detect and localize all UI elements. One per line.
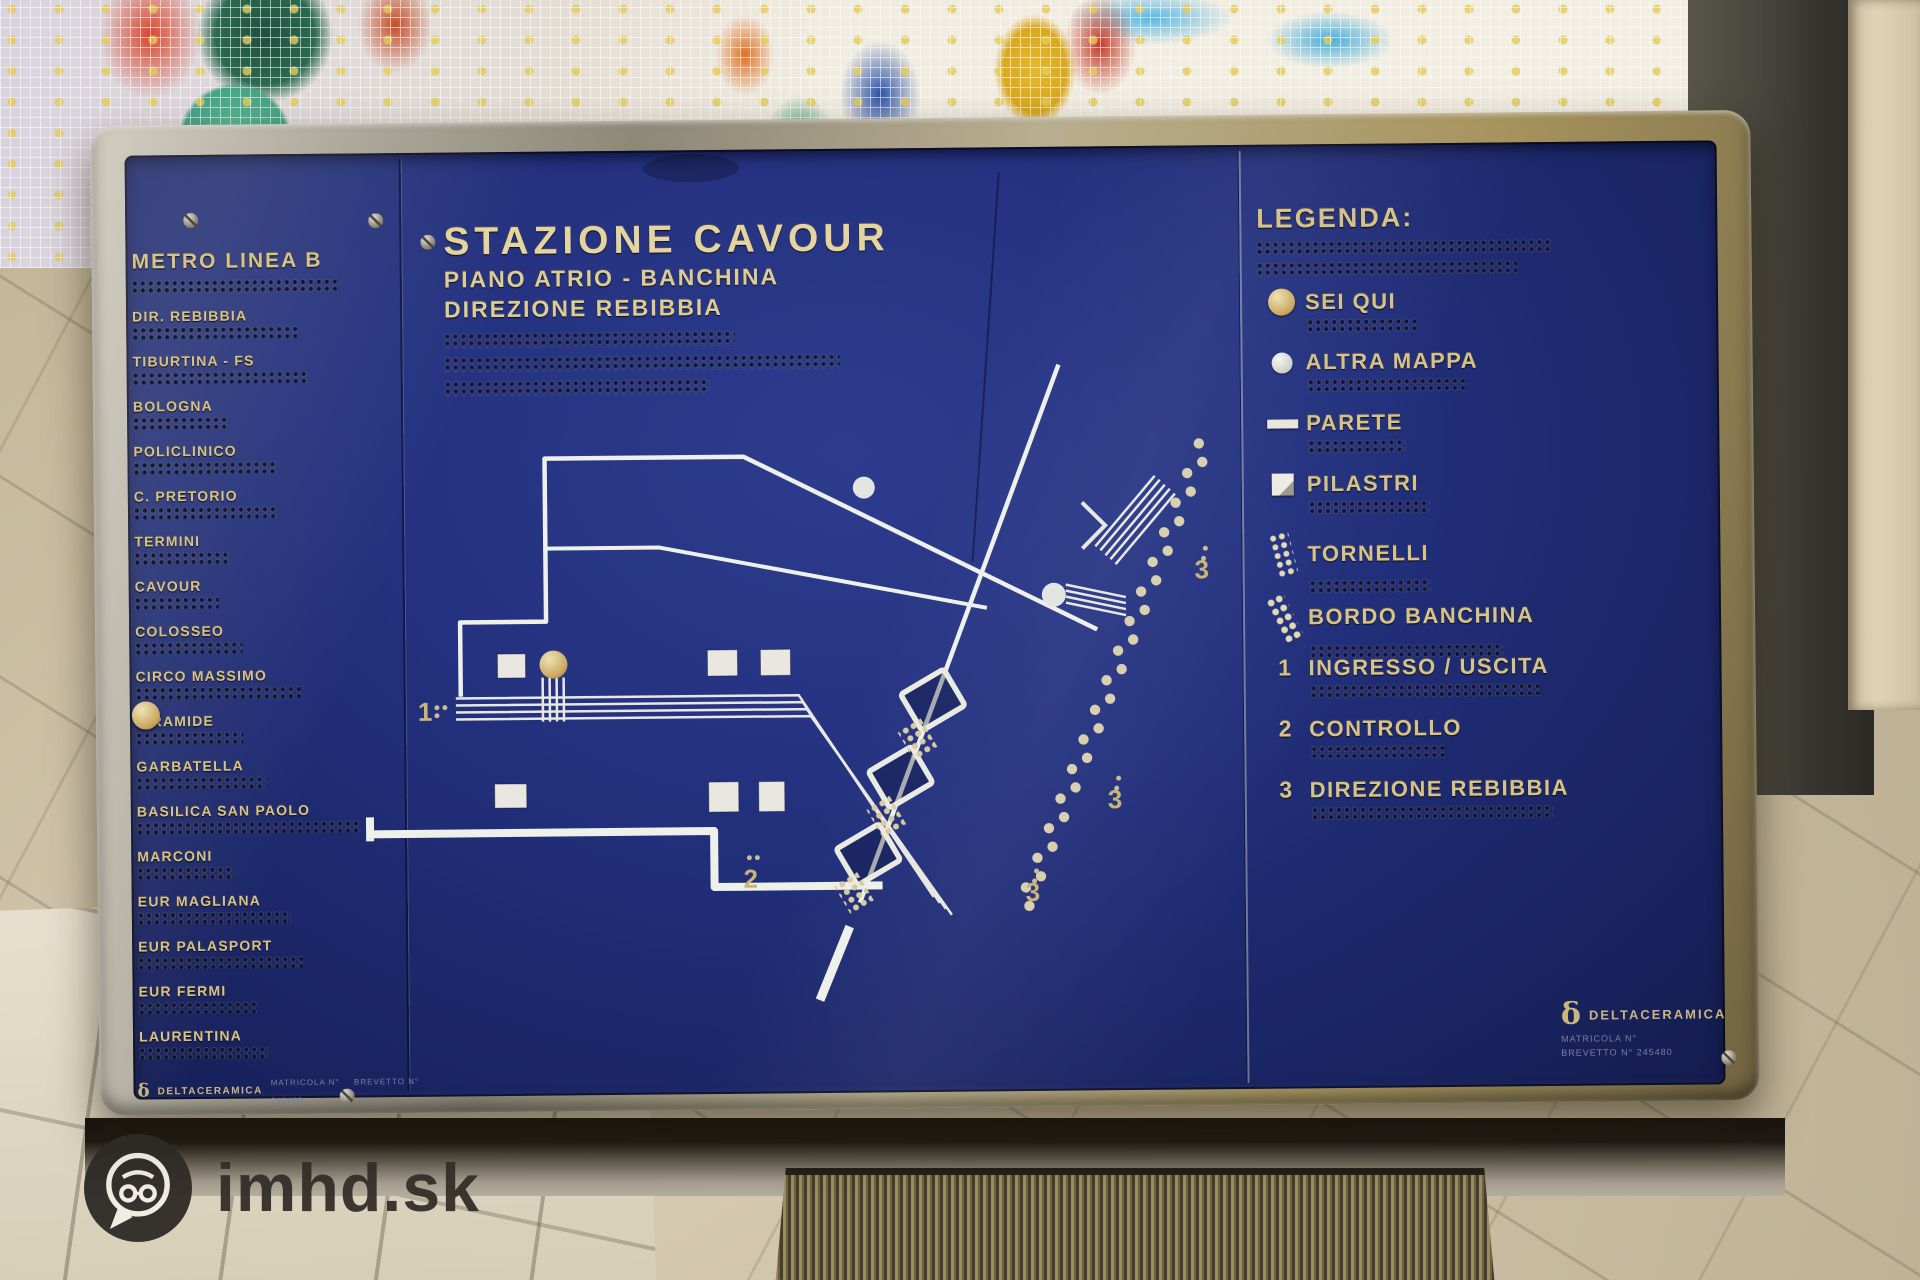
manufacturer-logo-icon: δ	[137, 1082, 149, 1100]
station-item: C. PRETORIO	[134, 486, 406, 534]
station-name: DIR. REBIBBIA	[132, 306, 404, 325]
photo-scene: 1 2 3 3 3 METRO LINEA B DIR. REBIBBIATIB…	[0, 0, 1920, 1280]
station-item: COLOSSEO	[135, 621, 407, 669]
station-name: EUR MAGLIANA	[138, 891, 410, 910]
legend-braille	[1308, 439, 1405, 453]
legend-label: BORDO BANCHINA	[1308, 602, 1535, 630]
white-dot-icon	[1271, 352, 1292, 373]
title-line3: DIREZIONE REBIBBIA	[444, 290, 891, 324]
platform-edge-dots-icon	[1265, 592, 1303, 643]
station-braille	[138, 911, 291, 924]
legend-item: TORNELLI	[1259, 528, 1740, 594]
station-item: CAVOUR	[135, 576, 407, 624]
legend-braille	[1308, 378, 1465, 393]
platform-edge-dots-icon	[1260, 593, 1308, 641]
braille-row	[132, 279, 337, 294]
legend-marker-number: 1	[1278, 654, 1291, 681]
legend-number-marker: 3	[1262, 776, 1310, 803]
station-list: DIR. REBIBBIATIBURTINA - FSBOLOGNAPOLICL…	[132, 306, 411, 1074]
white-dot-icon	[1258, 352, 1306, 373]
station-item: TIBURTINA - FS	[132, 351, 404, 399]
legend-marker-number: 2	[1279, 715, 1292, 742]
legend-item: PARETE	[1258, 406, 1739, 472]
legend-marker-number: 3	[1279, 776, 1292, 803]
station-name: GARBATELLA	[136, 756, 408, 775]
station-name: CIRCO MASSIMO	[135, 666, 407, 685]
legend-braille	[1311, 683, 1540, 698]
station-braille	[132, 326, 297, 340]
imhd-logo-icon	[84, 1134, 192, 1242]
ventilation-grate	[775, 1168, 1495, 1280]
manufacturer-mark-small: δ DELTACERAMICA MATRICOLA N° BREVETTO N°…	[137, 1071, 437, 1110]
legend-braille	[1310, 579, 1431, 593]
station-braille	[135, 597, 219, 610]
legend-label: DIREZIONE REBIBBIA	[1310, 774, 1569, 802]
station-item: TERMINI	[134, 531, 406, 579]
station-braille	[133, 371, 309, 385]
legend-label: CONTROLLO	[1309, 714, 1462, 741]
station-item: BASILICA SAN PAOLO	[137, 801, 409, 849]
gold-dot-icon	[1267, 288, 1294, 315]
stone-pillar	[1848, 0, 1920, 710]
station-braille	[137, 867, 233, 880]
legend-item: 1INGRESSO / USCITA	[1260, 650, 1741, 716]
station-braille	[136, 732, 243, 745]
title-line2: PIANO ATRIO - BANCHINA	[444, 260, 891, 294]
legend-braille	[1312, 805, 1553, 820]
turnstile-dots-icon	[1268, 531, 1298, 579]
pillar-square-icon	[1272, 473, 1294, 495]
station-braille	[139, 1001, 258, 1014]
station-item: PIRAMIDE	[136, 711, 408, 759]
legend-label: SEI QUI	[1305, 288, 1396, 315]
legend-item: BORDO BANCHINA	[1260, 589, 1741, 655]
turnstile-dots-icon	[1259, 532, 1307, 576]
pillar-square-icon	[1259, 473, 1307, 495]
screw-icon	[340, 1088, 355, 1103]
manufacturer-name: DELTACERAMICA	[1589, 1006, 1727, 1022]
legend-column: LEGENDA: SEI QUIALTRA MAPPAPARETEPILASTR…	[1256, 198, 1742, 838]
legend-number-marker: 1	[1260, 654, 1308, 681]
legend-item: 2CONTROLLO	[1261, 711, 1742, 777]
station-list-column: METRO LINEA B DIR. REBIBBIATIBURTINA - F…	[131, 247, 411, 1074]
legend-braille	[1307, 318, 1416, 332]
station-braille	[134, 552, 230, 565]
station-braille	[138, 956, 303, 970]
braille-row	[445, 379, 710, 397]
station-item: BOLOGNA	[133, 396, 405, 444]
manufacturer-patent: BREVETTO N° 245480	[1561, 1046, 1781, 1058]
legend-number-marker: 2	[1261, 715, 1309, 742]
station-name: TIBURTINA - FS	[132, 351, 404, 370]
line-header: METRO LINEA B	[131, 247, 403, 276]
screw-icon	[183, 213, 198, 228]
station-name: POLICLINICO	[133, 441, 405, 460]
legend-label: PARETE	[1306, 409, 1403, 436]
station-name: LAURENTINA	[139, 1026, 411, 1045]
legend-braille	[1311, 745, 1444, 759]
braille-row	[1256, 239, 1551, 256]
legend-label: PILASTRI	[1307, 470, 1419, 497]
station-item: LAURENTINA	[139, 1026, 411, 1074]
station-item: DIR. REBIBBIA	[132, 306, 404, 354]
station-name: TERMINI	[134, 531, 406, 550]
wall-bar-icon	[1267, 419, 1298, 428]
you-are-here-dot	[132, 701, 160, 729]
station-braille	[136, 686, 301, 700]
imhd-watermark: imhd.sk	[84, 1134, 480, 1242]
legend-header: LEGENDA:	[1256, 198, 1736, 235]
station-braille	[134, 461, 276, 474]
legend-label: TORNELLI	[1307, 540, 1429, 567]
station-name: COLOSSEO	[135, 621, 407, 640]
station-name: EUR FERMI	[139, 981, 411, 1000]
legend-braille	[1309, 500, 1430, 514]
legend-items: SEI QUIALTRA MAPPAPARETEPILASTRITORNELLI…	[1257, 284, 1742, 838]
station-braille	[133, 417, 229, 430]
station-name: CAVOUR	[135, 576, 407, 595]
braille-row	[444, 331, 734, 349]
station-name: PIRAMIDE	[136, 711, 408, 730]
station-braille	[134, 506, 276, 519]
tactile-map-panel: 1 2 3 3 3 METRO LINEA B DIR. REBIBBIATIB…	[90, 110, 1759, 1116]
station-item: EUR FERMI	[139, 981, 411, 1029]
station-title: STAZIONE CAVOUR	[443, 216, 890, 264]
manufacturer-mark: δ DELTACERAMICA MATRICOLA N° BREVETTO N°…	[1561, 998, 1782, 1058]
station-braille	[137, 820, 359, 834]
station-name: BASILICA SAN PAOLO	[137, 801, 409, 820]
legend-braille	[1310, 643, 1503, 658]
screw-icon	[420, 235, 435, 250]
manufacturer-serial: MATRICOLA N°	[1561, 1032, 1781, 1044]
station-name: BOLOGNA	[133, 396, 405, 415]
wall-bar-icon	[1258, 419, 1306, 428]
braille-row	[1257, 260, 1517, 276]
gold-dot-icon	[1257, 288, 1305, 315]
station-name: EUR PALASPORT	[138, 936, 410, 955]
braille-row	[445, 354, 840, 373]
station-name: C. PRETORIO	[134, 486, 406, 505]
manufacturer-logo-icon: δ	[1561, 1000, 1581, 1030]
manufacturer-name: DELTACERAMICA	[158, 1085, 263, 1097]
station-item: CIRCO MASSIMO	[135, 666, 407, 714]
station-braille	[139, 1046, 269, 1059]
screw-icon	[1721, 1050, 1736, 1065]
manufacturer-serial: MATRICOLA N°	[271, 1078, 340, 1088]
station-braille	[137, 776, 267, 789]
station-braille	[135, 642, 242, 655]
legend-label: ALTRA MAPPA	[1305, 348, 1478, 376]
legend-item: PILASTRI	[1259, 467, 1740, 533]
station-name: MARCONI	[137, 846, 409, 865]
station-item: POLICLINICO	[133, 441, 405, 489]
watermark-text: imhd.sk	[216, 1149, 480, 1227]
legend-item: 3DIREZIONE REBIBBIA	[1262, 772, 1743, 838]
station-item: MARCONI	[137, 846, 409, 894]
title-block: STAZIONE CAVOUR PIANO ATRIO - BANCHINA D…	[443, 216, 891, 396]
legend-item: ALTRA MAPPA	[1257, 345, 1738, 411]
screw-icon	[368, 213, 383, 228]
station-item: EUR MAGLIANA	[138, 891, 410, 939]
station-item: GARBATELLA	[136, 756, 408, 804]
station-item: EUR PALASPORT	[138, 936, 410, 984]
legend-item: SEI QUI	[1257, 284, 1738, 350]
